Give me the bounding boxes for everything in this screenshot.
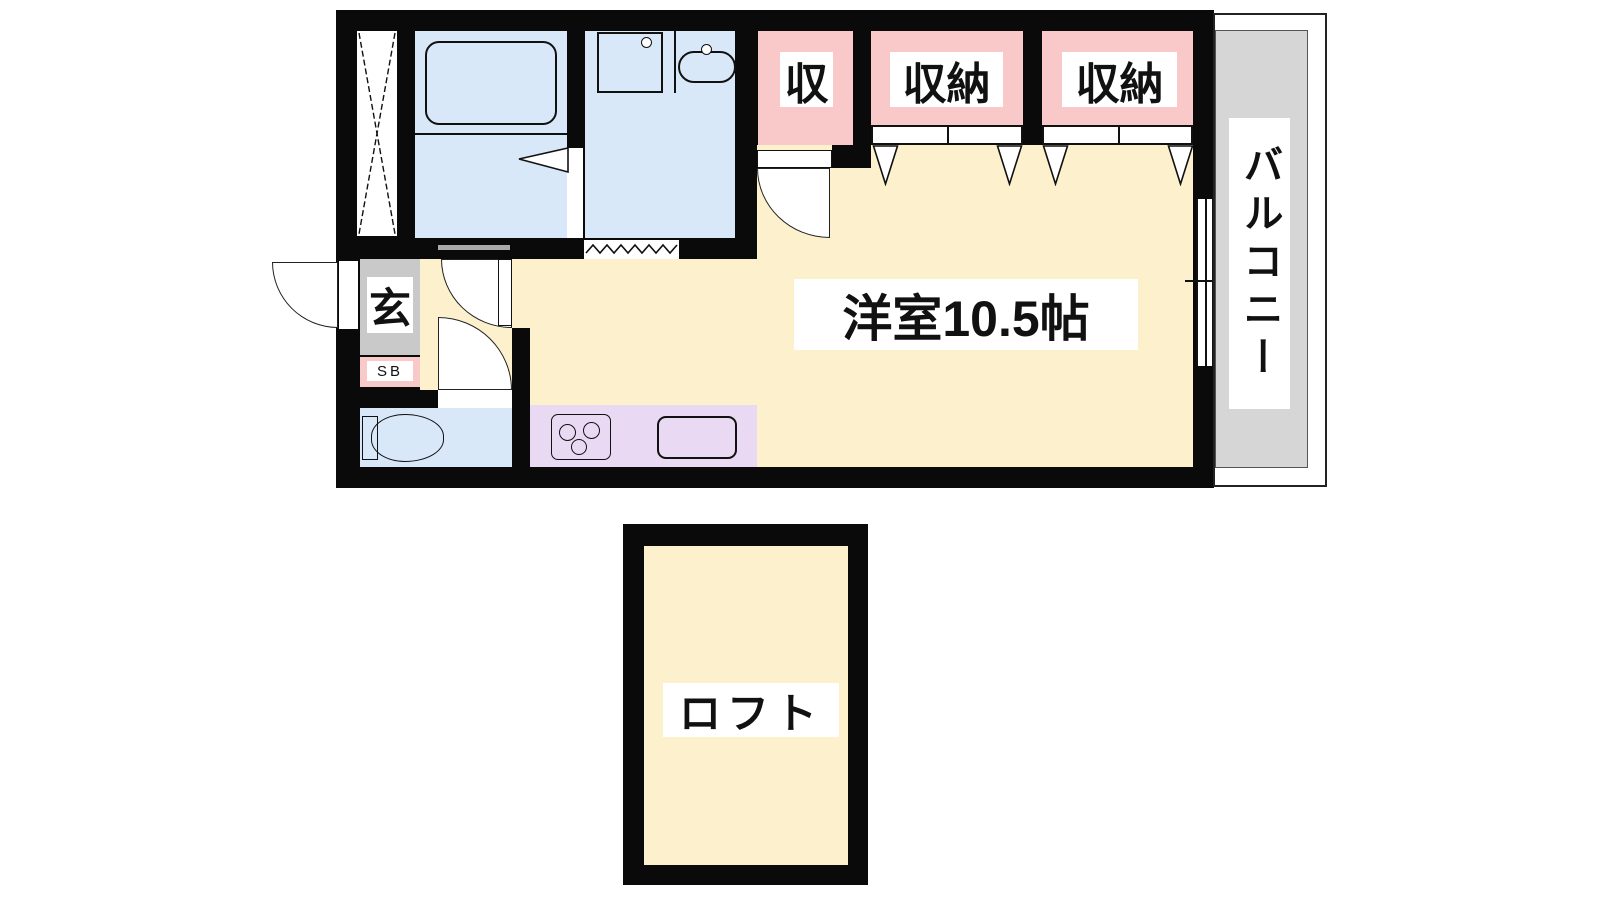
- entrance-label: 玄: [367, 277, 413, 333]
- entrance-doorway: [339, 261, 358, 329]
- closet-3-label: 収納: [1062, 52, 1177, 107]
- bathtub-icon: [425, 41, 557, 125]
- balcony-label: バルコニー: [1229, 118, 1290, 409]
- washer-faucet-icon: [641, 37, 652, 48]
- bath-door-icon: [516, 146, 570, 174]
- burner-icon-1: [559, 424, 576, 441]
- bifold-v-icon-3: [1042, 145, 1069, 186]
- bifold-v-icon-1: [872, 145, 899, 186]
- washroom-door-leaf: [498, 259, 512, 326]
- bifold-v-icon-4: [1167, 145, 1194, 186]
- closet-3-text: 収納: [1076, 48, 1164, 112]
- accordion-door-icon: [584, 240, 679, 259]
- closet-1-text: 収: [785, 48, 829, 112]
- closet-3-track-divider: [1118, 127, 1120, 143]
- stove-icon: [551, 414, 611, 460]
- shaft-room: [357, 31, 397, 236]
- wall-patch-closet1: [832, 145, 871, 168]
- closet-1-door-leaf: [757, 150, 832, 168]
- entrance-text: 玄: [369, 275, 411, 336]
- accordion-doorway: [584, 240, 679, 259]
- x-shaft-icon: [357, 31, 397, 236]
- entrance-door-arc: [272, 262, 338, 328]
- kitchen-sink-icon: [657, 416, 737, 459]
- washer-pan-icon: [597, 32, 663, 93]
- balcony-window-icon: [1196, 199, 1214, 366]
- bathroom-divider: [415, 133, 567, 135]
- toilet-bowl-icon: [371, 414, 444, 462]
- door-track-line: [438, 245, 510, 250]
- balcony-text: バルコニー: [1231, 144, 1289, 384]
- closet-2-door-track: [871, 125, 1023, 145]
- burner-icon-2: [583, 422, 600, 439]
- western-room-text: 洋室10.5帖: [842, 279, 1089, 351]
- sink-icon: [678, 51, 736, 83]
- window-center-rail: [1205, 199, 1207, 366]
- closet-1-label: 収: [780, 52, 833, 107]
- toilet-doorway: [438, 390, 512, 408]
- loft-label: ロフト: [663, 683, 839, 737]
- western-room-label: 洋室10.5帖: [794, 279, 1138, 350]
- sink-faucet-icon: [701, 44, 712, 55]
- closet-3-door-track: [1042, 125, 1193, 145]
- loft-text: ロフト: [679, 680, 823, 741]
- washroom-partition: [674, 31, 676, 93]
- bifold-v-icon-2: [996, 145, 1023, 186]
- shoe-box-text: SB: [377, 363, 403, 380]
- closet-2-label: 収納: [890, 52, 1003, 107]
- burner-icon-3: [571, 439, 587, 455]
- shoe-box-label: SB: [367, 361, 413, 381]
- hall-room-doorway: [512, 259, 530, 328]
- floor-plan: 収 収納 収納 洋室10.5帖 玄 SB: [0, 0, 1600, 900]
- closet-2-track-divider: [947, 127, 949, 143]
- closet-2-text: 収納: [903, 48, 991, 112]
